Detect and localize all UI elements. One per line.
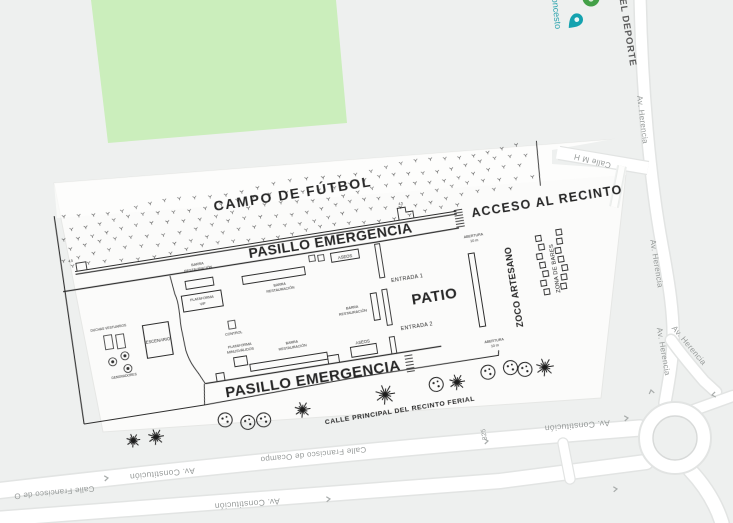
svg-text:4,5: 4,5: [68, 259, 73, 264]
svg-text:4,5: 4,5: [398, 201, 403, 206]
